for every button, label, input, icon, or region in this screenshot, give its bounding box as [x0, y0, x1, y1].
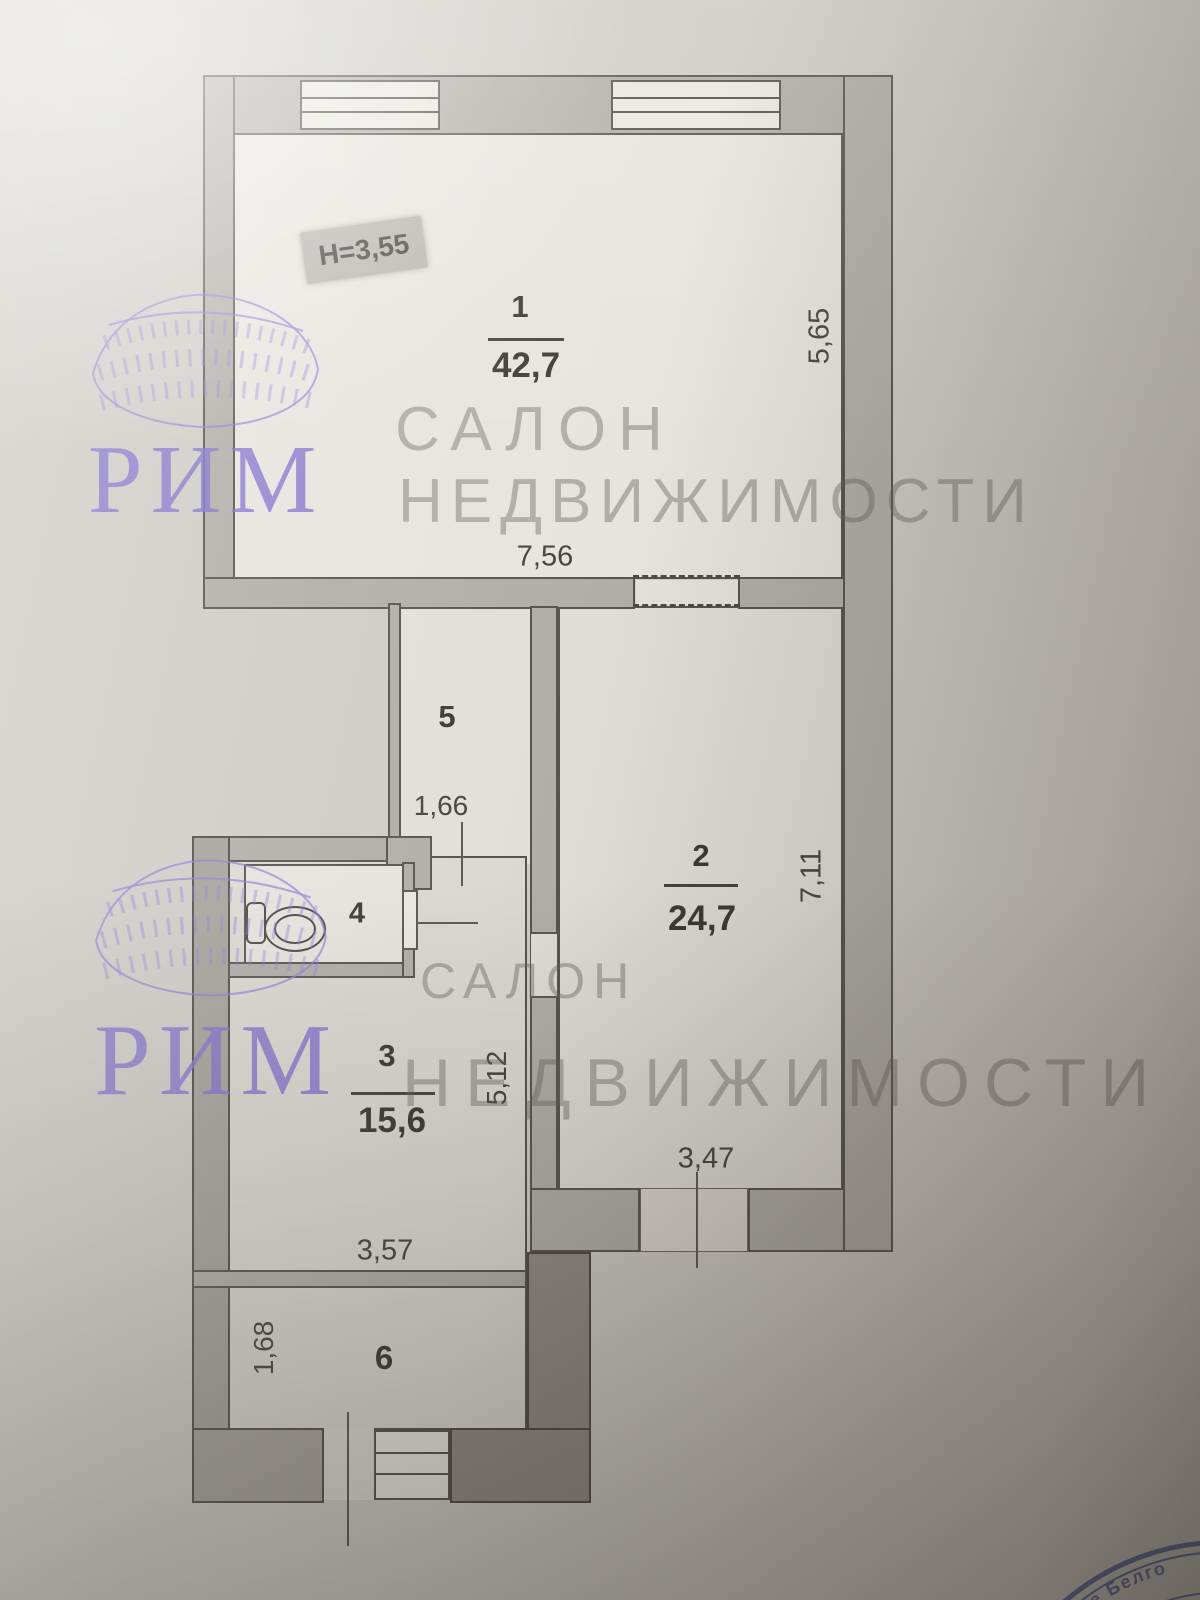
window-top-right [611, 80, 781, 130]
colosseum-arch-row [99, 357, 315, 375]
window-pane-line [376, 1473, 448, 1475]
wall-room5-left [388, 603, 401, 843]
dim-room2-width: 3,47 [678, 1143, 734, 1176]
room-2-number-label: 2 [692, 838, 709, 874]
colosseum-arch-row [104, 956, 320, 971]
wall-room2-bottom-left [530, 1188, 640, 1252]
room-1-fraction-line [488, 338, 564, 341]
wall-bottom-left-segment [192, 1428, 324, 1503]
room-2-fraction-line [664, 884, 738, 887]
wall-bottom-right-segment [450, 1428, 591, 1503]
window-top-left [300, 80, 440, 130]
colosseum-ledge [113, 878, 311, 897]
dimension-line-3-47 [696, 1172, 698, 1268]
room6-door-dimension-line [347, 1412, 349, 1546]
colosseum-arch-row [102, 924, 323, 942]
colosseum-arch-row [108, 893, 316, 913]
room-1-area-label: 42,7 [492, 346, 560, 386]
door-opening-room2-bottom [640, 1188, 748, 1252]
floor-plan: H=3,55 1 42,7 2 24,7 3 15,6 4 5 6 7,56 5… [0, 0, 1200, 1600]
room-5-number-label: 5 [438, 699, 455, 735]
watermark-nedvizhimosti-bottom: НЕДВИЖИМОСТИ [402, 1044, 1163, 1122]
wall-room4-right-lower [402, 948, 415, 978]
rim-logo-text-top: РИМ [88, 424, 324, 536]
dim-room1-depth: 5,65 [804, 308, 837, 364]
colosseum-ledge [109, 312, 303, 331]
room-5-interior [398, 601, 533, 864]
wall-room1-bottom-left [203, 577, 635, 609]
room-4-number-label: 4 [349, 898, 365, 931]
dashed-opening-top-line [633, 575, 740, 578]
window-pane-line [613, 111, 779, 113]
room4-door-dimension-line [418, 922, 478, 924]
wall-room2-left [530, 606, 558, 1252]
room-2-area-label: 24,7 [668, 899, 736, 939]
colosseum-arch-row [101, 388, 313, 403]
colosseum-watermark-bottom [88, 848, 333, 1008]
dim-room6-depth: 1,68 [248, 1321, 280, 1376]
watermark-salon-bottom: САЛОН [420, 952, 637, 1010]
window-pane-line [302, 97, 438, 99]
dim-room1-width: 7,56 [517, 541, 573, 574]
window-bottom [374, 1430, 450, 1500]
watermark-nedvizhimosti-top: НЕДВИЖИМОСТИ [398, 466, 1035, 537]
room-6-number-label: 6 [375, 1339, 393, 1377]
wall-room1-bottom-right [738, 577, 845, 609]
door-opening-room6-bottom [324, 1428, 374, 1500]
door-opening-room1-room2 [636, 580, 738, 606]
colosseum-watermark-top [85, 285, 325, 437]
window-pane-line [302, 111, 438, 113]
rim-logo-text-bottom: РИМ [94, 1002, 339, 1119]
dim-room5-width: 1,66 [414, 790, 469, 822]
dashed-opening-bottom-line [633, 604, 740, 607]
dim-room3-width: 3,57 [357, 1235, 413, 1268]
window-pane-line [376, 1452, 448, 1454]
room-1-number-label: 1 [511, 289, 528, 325]
room4-door-leaf [402, 890, 418, 950]
watermark-salon-top: САЛОН [395, 394, 675, 465]
room-3-number-label: 3 [378, 1038, 395, 1074]
dim-room2-depth: 7,11 [796, 849, 829, 903]
wall-room2-bottom-right [748, 1188, 845, 1252]
colosseum-arch-row [105, 327, 309, 347]
scanned-floor-plan-photo: H=3,55 1 42,7 2 24,7 3 15,6 4 5 6 7,56 5… [0, 0, 1200, 1600]
wall-room3-bottom [192, 1270, 527, 1288]
round-stamp: приятие Белго дарственного [975, 1426, 1200, 1600]
dimension-line-1-66 [461, 822, 463, 886]
window-pane-line [613, 97, 779, 99]
